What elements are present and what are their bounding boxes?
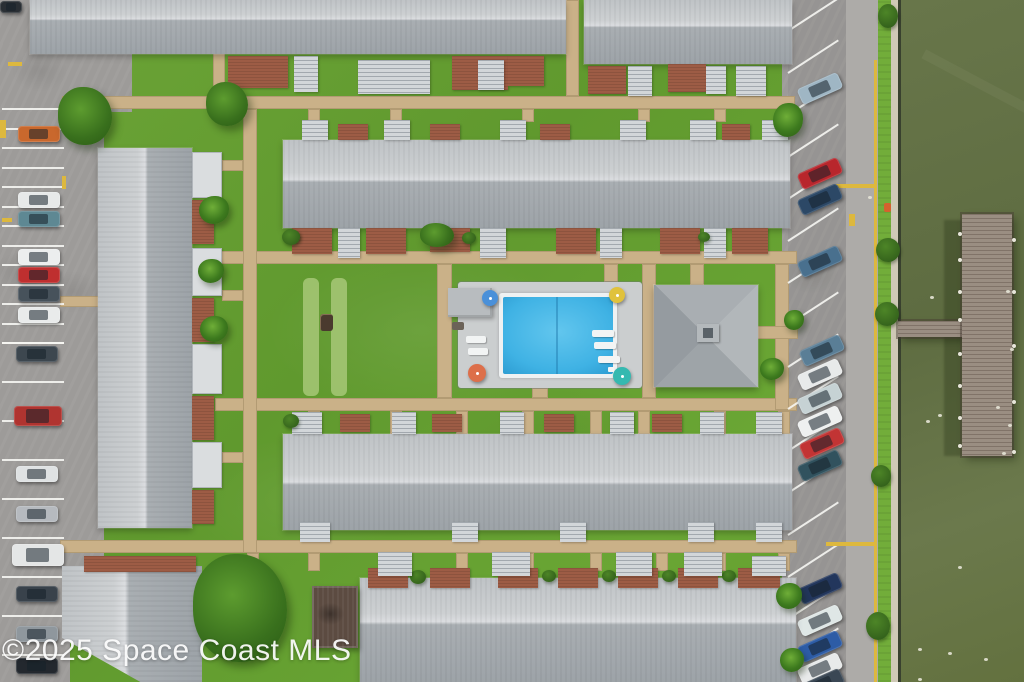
car [16,506,58,522]
car-glass [26,548,50,563]
umbrella-pole [616,294,619,297]
parking-stripe [2,147,64,149]
parking-stripe [2,108,64,110]
apartment-building-roof [584,0,792,64]
dock-post [958,444,962,448]
car [16,466,58,482]
dock-post [958,258,962,262]
parking-stripe [2,303,64,305]
car [14,406,62,426]
staircase [392,412,416,434]
bench [320,314,333,331]
dock-post [1012,238,1016,242]
bush [602,570,616,582]
apartment-building-roof [98,148,192,528]
staircase [752,556,786,576]
brick-patio [652,414,682,432]
brick-patio [430,124,460,140]
dock-post [1012,450,1016,454]
car-glass [29,252,48,263]
dock-post [1012,400,1016,404]
umbrella [613,367,631,385]
car-glass [29,195,48,206]
balcony [192,152,222,198]
parking-stripe [2,459,64,461]
staircase [610,412,634,434]
staircase [688,522,714,542]
car [12,544,64,566]
bush [283,414,299,428]
water-speck [948,652,952,655]
bush [698,232,710,242]
staircase [628,66,652,96]
parking-stripe [2,245,64,247]
walkway [222,290,243,301]
yellow-road-marking [62,176,66,189]
umbrella [482,290,498,306]
car [18,249,60,265]
car [18,307,60,323]
staircase [560,522,586,542]
apartment-building-roof [283,140,790,228]
brick-patio [228,56,288,88]
apartment-building-roof [30,0,566,54]
lounge-chair [466,336,486,343]
car-glass [27,589,46,600]
walkway [243,109,257,553]
lawn-stripe [331,278,347,396]
brick-patio [432,414,462,432]
water-speck [1006,290,1010,293]
car-glass [27,469,46,480]
brick-patio [366,228,406,254]
dock-post [958,352,962,356]
brick-patio [668,64,706,92]
walkway [590,411,602,434]
car-glass [29,214,48,225]
car-glass [29,129,48,140]
parking-stripe [2,576,64,578]
dock-shadow [944,220,962,456]
dock-post [958,232,962,236]
dock [962,214,1012,456]
tree [206,82,248,126]
car [18,267,60,283]
car-glass [29,270,48,281]
dock-post [1012,290,1016,294]
yellow-road-marking [0,120,6,138]
yellow-road-marking [836,184,876,188]
palm-tree [199,196,229,224]
staircase [492,552,530,576]
water-speck [868,196,872,199]
brick-patio [192,490,214,524]
bush [282,229,300,245]
walkway [222,160,243,171]
tree [58,87,112,145]
cupola-vent [703,328,713,338]
car-glass [27,349,46,360]
brick-patio [192,396,214,440]
pool-seam [556,297,558,374]
umbrella-pole [489,297,492,300]
staircase [338,228,360,258]
bush [875,302,899,326]
water-speck [938,414,942,417]
walkway [222,452,243,463]
yellow-road-marking [874,60,877,682]
walkway [215,398,797,411]
walkway [532,388,548,398]
apartment-building-roof [283,434,792,530]
parking-stripe [2,381,64,383]
water-speck [996,406,1000,409]
bush [871,465,891,487]
walkway [690,264,704,285]
water-speck [984,658,988,661]
parking-stripe [2,615,64,617]
dock-post [958,416,962,420]
car [18,211,60,227]
brick-patio [588,66,626,94]
water-speck [1008,424,1012,427]
walkway [62,96,795,109]
umbrella [468,364,486,382]
brick-patio [340,414,370,432]
walkway [638,411,650,434]
lounge-chair [468,348,488,355]
staircase [300,522,330,542]
yellow-road-marking [8,62,22,66]
yellow-road-marking [849,214,855,226]
walkway [60,296,100,307]
staircase [600,228,622,258]
brick-patio [732,228,768,254]
pool-ladder [608,367,614,372]
yellow-road-marking [2,218,12,222]
car-glass [29,289,48,300]
staircase [384,120,410,140]
staircase [700,412,724,434]
brick-patio [556,228,596,254]
car-glass [6,3,16,11]
tree [420,223,454,247]
watermark-text: ©2025 Space Coast MLS [2,634,351,668]
staircase [500,412,524,434]
dock-walkway [898,321,964,337]
bush [410,570,426,584]
water-speck [918,678,922,681]
umbrella-pole [621,375,624,378]
walkway [604,264,618,282]
brick-patio [722,124,750,140]
car-glass [26,409,48,423]
car [18,286,60,302]
walkway [566,0,579,96]
dock-post [958,318,962,322]
car-glass [27,509,46,520]
grass-verge [878,0,892,682]
lawn-stripe [303,278,319,396]
water-speck [918,648,922,651]
lounge-chair [594,342,616,349]
car [0,1,22,13]
staircase [756,412,782,434]
water-speck [958,566,962,569]
balcony [192,442,222,488]
lounge-chair [592,330,614,337]
bush [662,570,676,582]
walkway [308,553,320,571]
bush [722,570,736,582]
staircase [706,66,726,94]
water-speck [926,420,930,423]
walkway [437,264,452,398]
brick-patio [430,568,470,588]
lounge-chair [598,356,620,363]
apartment-building-roof [360,578,796,682]
dock-post [958,384,962,388]
staircase [294,56,318,92]
staircase [478,60,504,90]
staircase [452,522,478,542]
car [18,192,60,208]
dock-post [958,290,962,294]
staircase [302,120,328,140]
balcony [192,344,222,394]
yellow-road-marking [826,542,876,546]
staircase [736,66,766,96]
parking-stripe [2,537,64,539]
staircase [358,60,430,94]
parking-stripe [2,342,64,344]
palm-tree [200,316,228,342]
car [16,586,58,602]
brick-patio [544,414,574,432]
umbrella-pole [476,372,479,375]
brick-patio [540,124,570,140]
water-speck [1002,452,1006,455]
staircase [616,552,652,576]
brick-patio [338,124,368,140]
staircase [500,120,526,140]
water-speck [930,296,934,299]
bush [866,612,890,640]
car [18,126,60,142]
car [16,346,58,362]
staircase [378,552,412,576]
parking-stripe [2,186,64,188]
staircase [684,552,722,576]
staircase [480,228,506,258]
patio-table [452,322,464,330]
water-speck [1010,348,1014,351]
aerial-photo: ©2025 Space Coast MLS [0,0,1024,682]
brick-patio [558,568,598,588]
brick-patio [660,228,700,254]
bush [542,570,556,582]
bush [878,4,898,28]
bush [462,232,476,244]
parking-stripe [2,498,64,500]
staircase [620,120,646,140]
brick-patio [508,56,544,86]
brick-patio [84,556,196,572]
bush [876,238,900,262]
staircase [756,522,782,542]
parking-stripe [2,167,64,169]
car-glass [29,310,48,321]
umbrella [609,287,625,303]
staircase [690,120,716,140]
hydrant-marker [884,203,891,212]
